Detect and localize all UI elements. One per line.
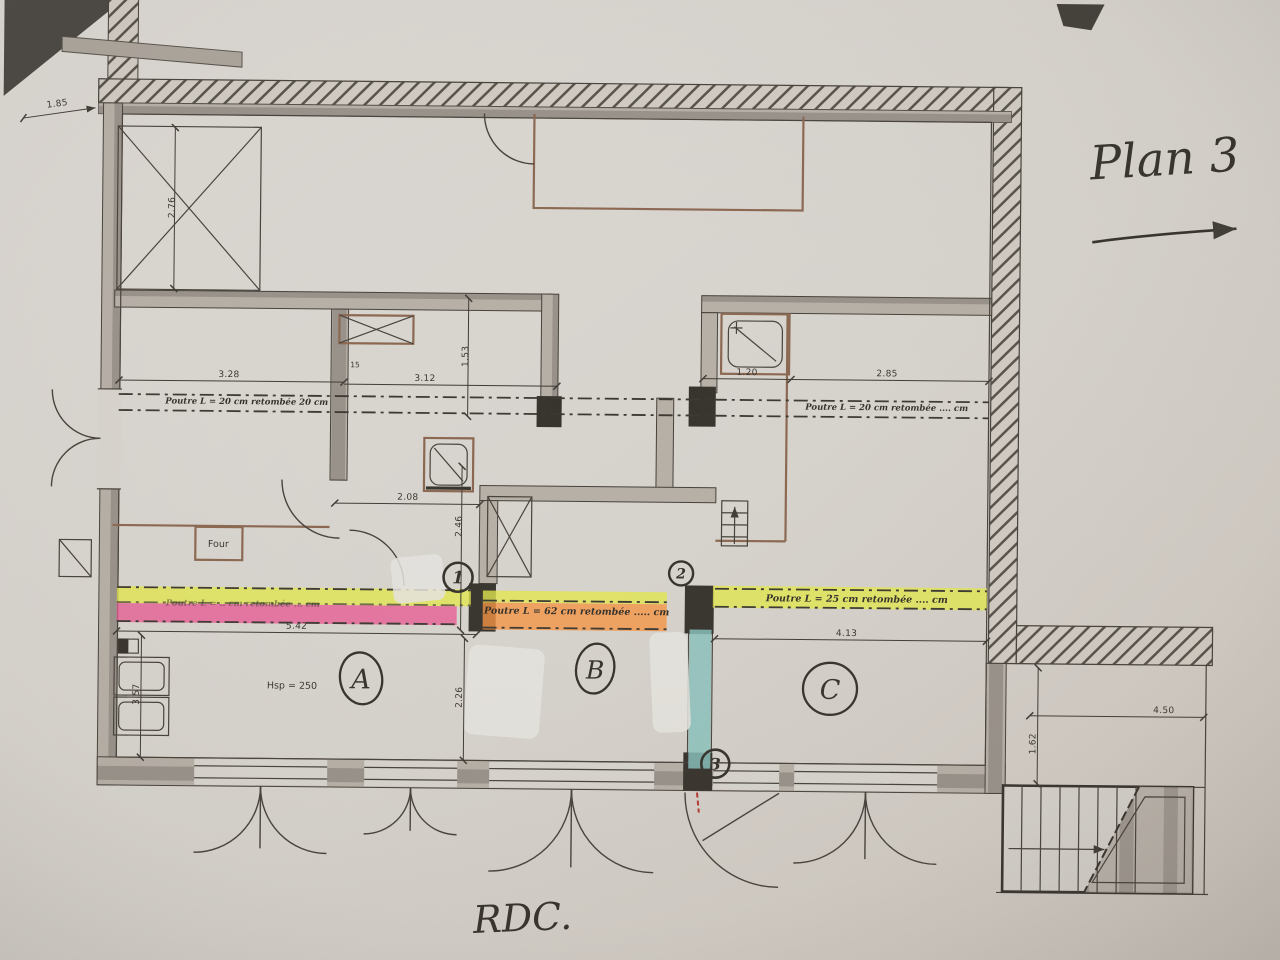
oven-label: Four (208, 539, 229, 550)
ceiling-height-note: Hsp = 250 (267, 680, 317, 691)
dim-1-20: 1.20 (736, 368, 757, 378)
dim-2-85: 2.85 (876, 369, 897, 379)
dim-15: 15 (350, 360, 360, 369)
marker-1: 1 (452, 568, 464, 588)
marker-3: 3 (710, 755, 721, 774)
dim-2-76: 2.76 (167, 197, 177, 218)
zone-a-label: A (348, 664, 371, 695)
dim-3-28: 3.28 (218, 370, 239, 380)
photo-of-floor-plan: 1.85 2.76 3.28 3.12 1.53 15 1.20 2.85 2.… (0, 0, 1280, 960)
stairs (1002, 785, 1193, 893)
dim-3-57: 3.57 (132, 684, 142, 705)
dim-4-13: 4.13 (836, 629, 857, 639)
beam-note-right-upper: Poutre L = 20 cm retombée .... cm (804, 402, 968, 415)
beam-note-left-lower: Poutre L = .. cm retombée ... cm (165, 597, 320, 609)
floor-label: RDC. (471, 894, 573, 942)
zone-b-label: B (585, 655, 605, 684)
marker-2: 2 (675, 566, 686, 582)
beam-note-center: Poutre L = 62 cm retombée ..... cm (483, 605, 669, 618)
dim-1-62: 1.62 (1028, 733, 1038, 754)
beam-note-left-upper: Poutre L = 20 cm retombée 20 cm (164, 395, 328, 408)
floor-plan-drawing: 1.85 2.76 3.28 3.12 1.53 15 1.20 2.85 2.… (0, 0, 1280, 960)
dim-3-12: 3.12 (414, 374, 435, 384)
dim-2-26: 2.26 (455, 687, 465, 708)
dim-2-08: 2.08 (397, 493, 418, 503)
zone-c-label: C (820, 675, 841, 706)
dim-5-42: 5.42 (286, 622, 307, 632)
dim-2-46: 2.46 (454, 516, 464, 537)
beam-note-right-lower: Poutre L = 25 cm retombée .... cm (765, 593, 948, 606)
highlight-teal-column (688, 629, 711, 768)
dim-1-53: 1.53 (461, 346, 471, 367)
plan-title: Plan 3 (1087, 128, 1241, 192)
dim-4-50: 4.50 (1153, 706, 1174, 716)
